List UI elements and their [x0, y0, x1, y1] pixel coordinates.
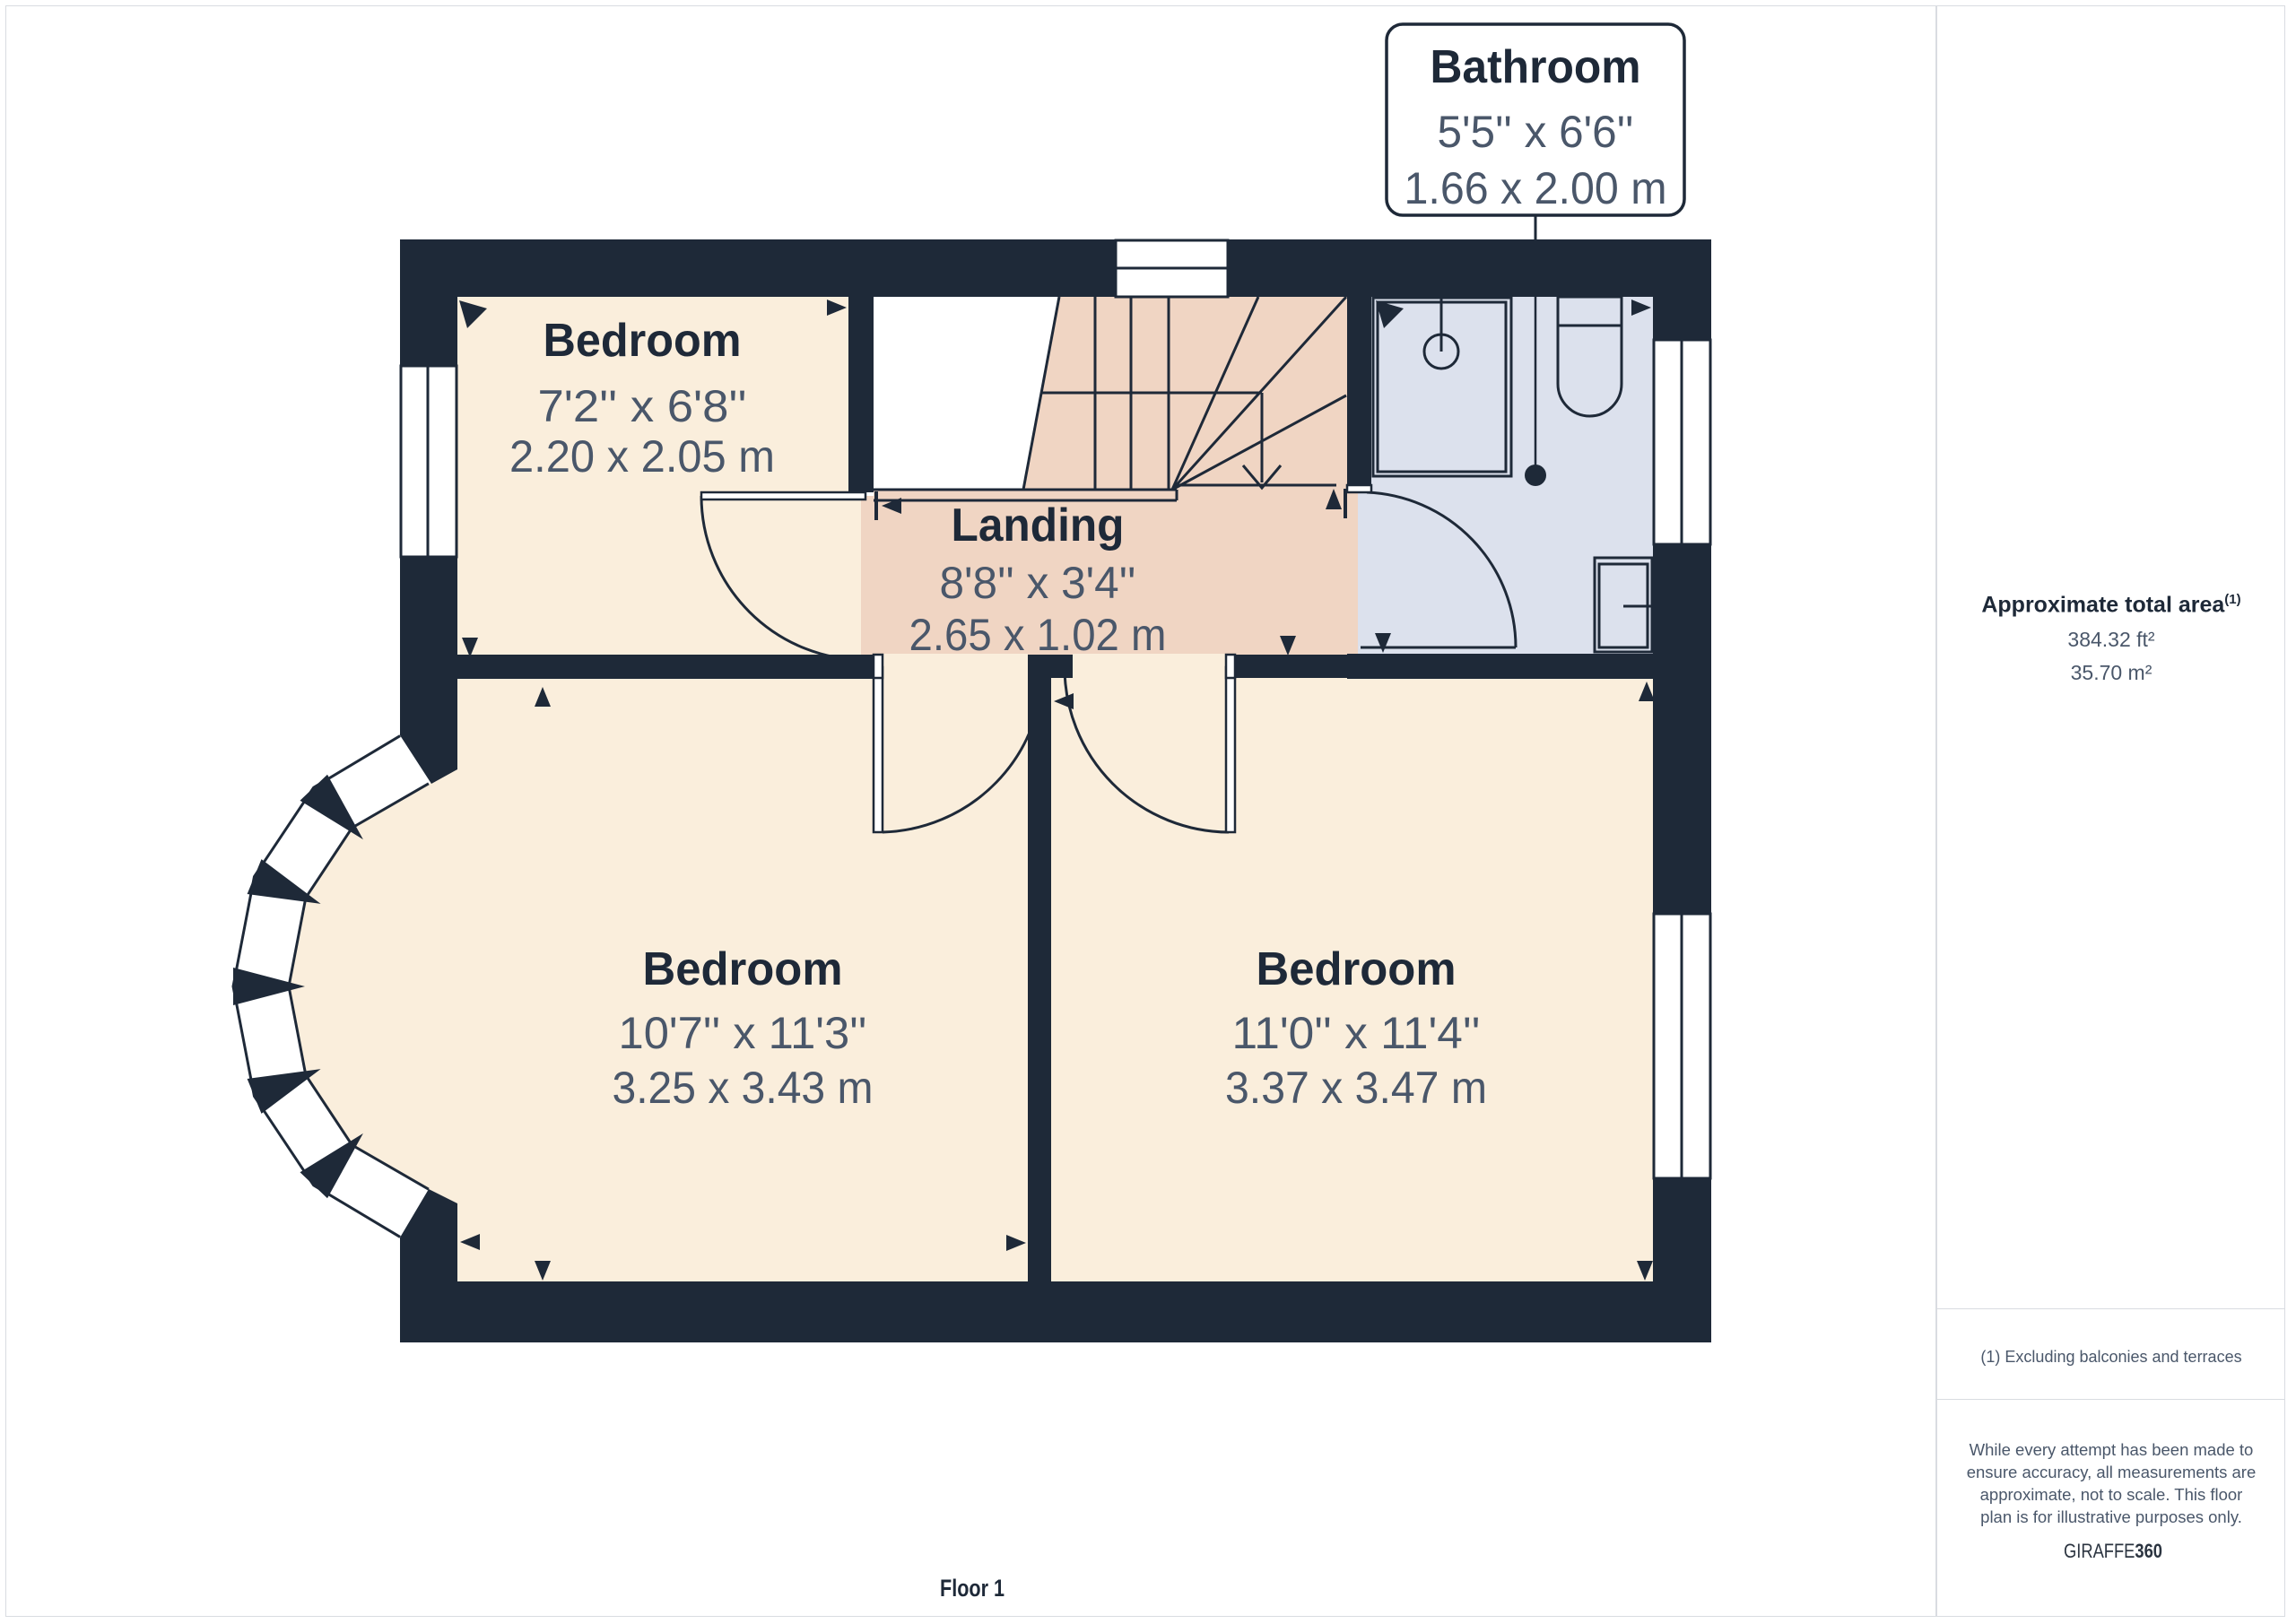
svg-text:11'0'' x 11'4'': 11'0'' x 11'4'': [1232, 1008, 1481, 1058]
svg-text:Landing: Landing: [952, 499, 1125, 551]
svg-text:1.66 x 2.00 m: 1.66 x 2.00 m: [1405, 163, 1667, 213]
svg-text:GIRAFFE360: GIRAFFE360: [2064, 1540, 2162, 1562]
svg-text:3.37 x 3.47 m: 3.37 x 3.47 m: [1225, 1063, 1487, 1113]
svg-text:Floor 1: Floor 1: [940, 1575, 1004, 1602]
svg-text:10'7'' x 11'3'': 10'7'' x 11'3'': [619, 1008, 867, 1058]
svg-text:7'2'' x 6'8'': 7'2'' x 6'8'': [538, 381, 747, 431]
svg-text:5'5'' x 6'6'': 5'5'' x 6'6'': [1438, 107, 1634, 157]
svg-text:Bedroom: Bedroom: [643, 943, 843, 995]
svg-text:Bedroom: Bedroom: [544, 315, 742, 367]
svg-text:Bedroom: Bedroom: [1257, 943, 1457, 995]
svg-text:8'8'' x 3'4'': 8'8'' x 3'4'': [940, 558, 1136, 608]
svg-text:2.65 x 1.02 m: 2.65 x 1.02 m: [909, 610, 1167, 660]
svg-text:Bathroom: Bathroom: [1431, 41, 1641, 93]
svg-text:2.20 x 2.05 m: 2.20 x 2.05 m: [509, 431, 775, 482]
svg-text:3.25 x 3.43 m: 3.25 x 3.43 m: [613, 1063, 874, 1113]
